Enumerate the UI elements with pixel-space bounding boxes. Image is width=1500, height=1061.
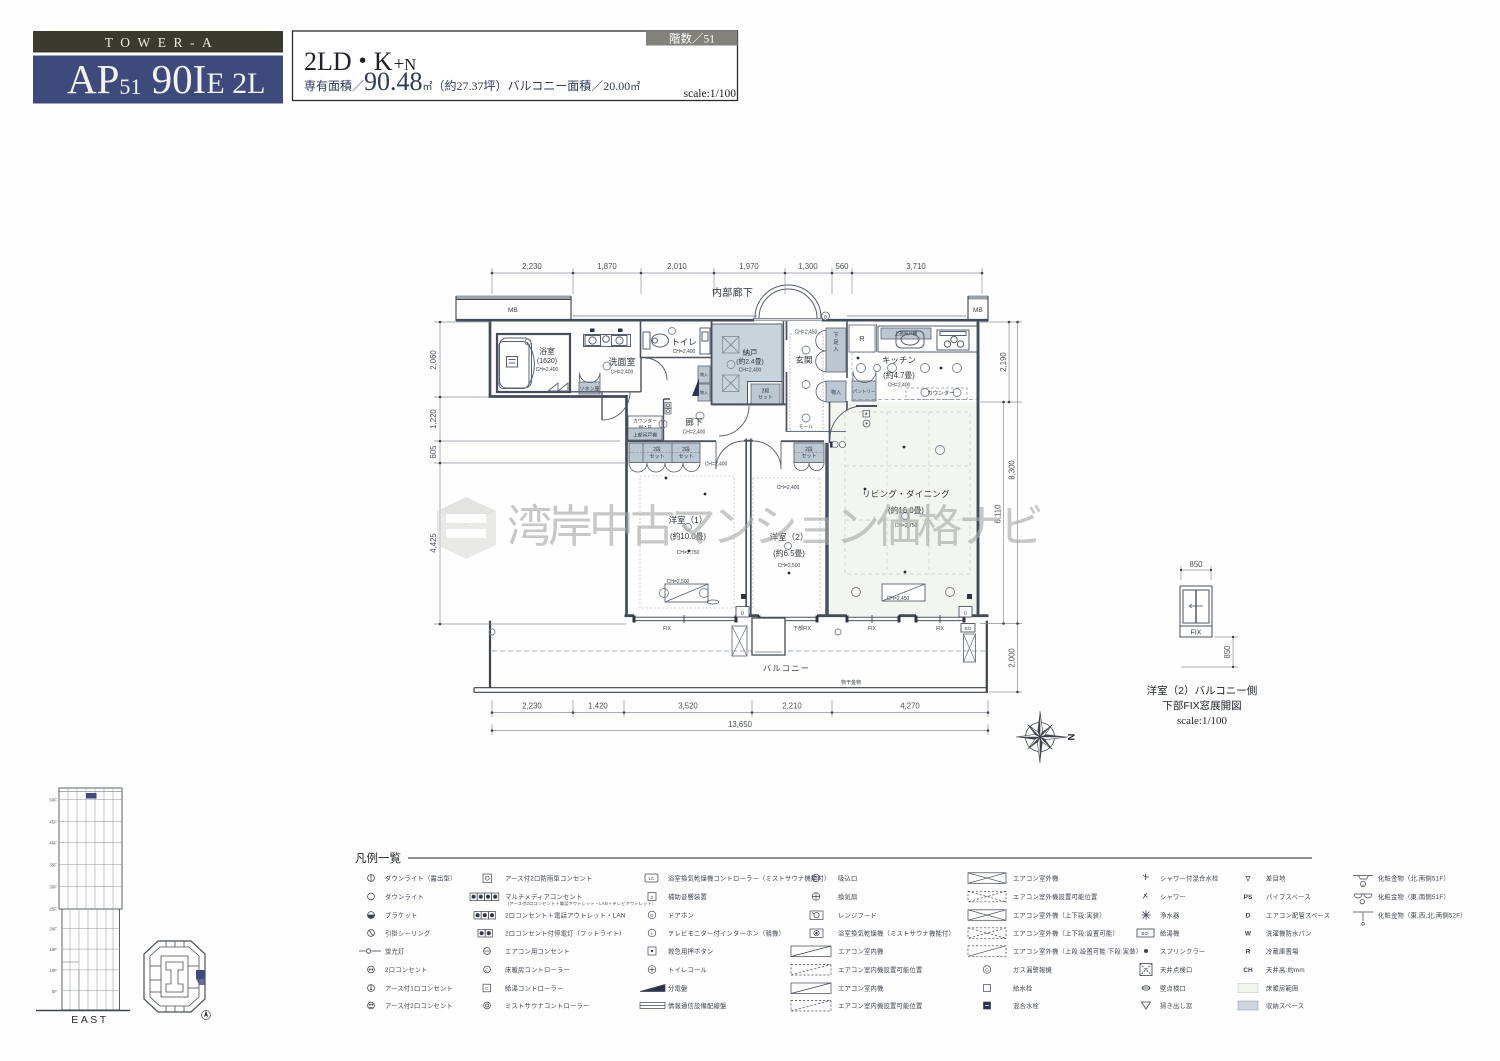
svg-text:物入: 物入: [700, 389, 708, 395]
svg-text:2,230: 2,230: [522, 262, 542, 271]
svg-text:下足入: 下足入: [833, 332, 839, 353]
svg-text:分電盤: 分電盤: [668, 984, 688, 993]
svg-text:キッチン: キッチン: [882, 355, 916, 365]
svg-text:エアコン室内機: エアコン室内機: [838, 984, 884, 993]
svg-text:物入: 物入: [831, 389, 841, 396]
svg-text:3,520: 3,520: [678, 702, 698, 711]
svg-text:W: W: [1245, 931, 1252, 938]
svg-text:アース付2口コンセント: アース付2口コンセント: [385, 1001, 453, 1010]
svg-text:CH=2,400: CH=2,400: [536, 367, 559, 373]
svg-text:FIX: FIX: [1191, 630, 1202, 637]
svg-text:下部FIX: 下部FIX: [793, 625, 811, 632]
svg-text:CH=2,450: CH=2,450: [795, 330, 818, 336]
svg-text:リビング・ダイニング: リビング・ダイニング: [862, 489, 950, 499]
svg-text:D: D: [650, 913, 654, 918]
svg-text:トイレ: トイレ: [671, 337, 697, 347]
svg-text:エアコン室外機（上下段:実装）: エアコン室外機（上下段:実装）: [1013, 911, 1106, 920]
svg-text:CH=2,500: CH=2,500: [778, 563, 801, 569]
svg-text:浴室換気乾燥機（ミストサウナ機能付）: 浴室換気乾燥機（ミストサウナ機能付）: [838, 929, 955, 938]
svg-text:ダウンライト（露出型）: ダウンライト（露出型）: [385, 874, 456, 883]
svg-text:浴室換気乾燥機コントローラー（ミストサウナ機能付）: 浴室換気乾燥機コントローラー（ミストサウナ機能付）: [668, 874, 830, 883]
svg-text:アース付2口防雨型コンセント: アース付2口防雨型コンセント: [505, 874, 592, 883]
svg-text:吸込口: 吸込口: [838, 874, 858, 883]
svg-text:D: D: [741, 611, 745, 617]
svg-text:セット: セット: [801, 454, 816, 460]
svg-text:カウンター: カウンター: [927, 389, 955, 397]
svg-text:BO: BO: [1142, 931, 1149, 936]
svg-text:2,010: 2,010: [667, 262, 687, 271]
svg-text:天井高:約mm: 天井高:約mm: [1266, 965, 1305, 974]
svg-text:2段: 2段: [805, 446, 813, 453]
svg-text:G: G: [985, 967, 989, 972]
svg-text:40F: 40F: [49, 841, 57, 846]
svg-text:CH=2,400: CH=2,400: [739, 368, 762, 374]
svg-text:シャワー: シャワー: [1160, 893, 1186, 901]
svg-text:CH=2,400: CH=2,400: [888, 383, 911, 389]
svg-text:2,060: 2,060: [429, 350, 438, 370]
svg-text:CH=2,400: CH=2,400: [673, 349, 696, 355]
svg-text:2段: 2段: [682, 446, 690, 453]
svg-text:エアコン配管スペース: エアコン配管スペース: [1266, 911, 1330, 920]
svg-text:2: 2: [651, 895, 654, 900]
svg-text:CH=2,400: CH=2,400: [611, 370, 634, 376]
svg-text:エアコン室外機設置可能位置: エアコン室外機設置可能位置: [1013, 892, 1097, 901]
svg-text:I: I: [651, 931, 652, 936]
svg-text:1,420: 1,420: [588, 702, 608, 711]
svg-text:換気扇: 換気扇: [838, 892, 858, 901]
svg-text:4,270: 4,270: [900, 702, 920, 711]
svg-text:20F: 20F: [49, 926, 57, 931]
svg-text:CH: CH: [1243, 967, 1253, 974]
svg-text:FIX: FIX: [936, 626, 944, 632]
svg-text:給湯機: 給湯機: [1160, 929, 1180, 938]
svg-text:2,230: 2,230: [522, 702, 542, 711]
svg-text:冷蔵庫置場: 冷蔵庫置場: [1266, 947, 1299, 956]
svg-text:2段: 2段: [762, 388, 770, 395]
svg-text:2口コンセント＋電話アウトレット・LAN: 2口コンセント＋電話アウトレット・LAN: [505, 911, 626, 920]
svg-text:下部FIX窓展開図: 下部FIX窓展開図: [1162, 699, 1241, 712]
svg-text:CH=2,400: CH=2,400: [777, 485, 800, 491]
svg-text:D: D: [1246, 913, 1251, 920]
svg-text:ミストサウナコントローラー: ミストサウナコントローラー: [505, 1002, 589, 1010]
svg-text:ガス漏警報機: ガス漏警報機: [1013, 965, 1052, 974]
svg-text:収納スペース: 収納スペース: [1266, 1001, 1304, 1010]
svg-text:洗濯機防水パン: 洗濯機防水パン: [1266, 929, 1312, 938]
svg-text:ダウンライト: ダウンライト: [385, 892, 424, 901]
svg-text:2,190: 2,190: [999, 352, 1008, 372]
svg-text:カウンター: カウンター: [633, 418, 657, 425]
svg-text:850: 850: [1223, 645, 1232, 659]
svg-text:CH=2,400: CH=2,400: [683, 430, 706, 436]
svg-text:階数／51: 階数／51: [669, 32, 715, 46]
svg-text:13,650: 13,650: [728, 720, 753, 729]
svg-text:(約2.4畳): (約2.4畳): [736, 357, 764, 366]
svg-text:パイプスペース: パイプスペース: [1266, 893, 1311, 901]
svg-text:壁点検口: 壁点検口: [1160, 984, 1186, 993]
svg-text:シャワー付混合水栓: シャワー付混合水栓: [1160, 874, 1219, 883]
svg-text:玄関: 玄関: [795, 355, 812, 365]
svg-text:スプリンクラー: スプリンクラー: [1160, 948, 1205, 956]
svg-text:エアコン室外機: エアコン室外機: [1013, 874, 1059, 883]
svg-text:25F: 25F: [49, 907, 57, 912]
svg-text:物干金物: 物干金物: [841, 679, 861, 686]
svg-text:セット: セット: [678, 454, 693, 460]
svg-text:救急用押ボタン: 救急用押ボタン: [668, 947, 713, 956]
svg-text:2口コンセント: 2口コンセント: [385, 966, 428, 974]
svg-text:内部廊下: 内部廊下: [712, 286, 753, 299]
svg-text:エアコン用コンセント: エアコン用コンセント: [505, 948, 570, 956]
svg-text:バルコニー: バルコニー: [763, 664, 810, 673]
svg-text:3,710: 3,710: [906, 262, 926, 271]
svg-text:1,300: 1,300: [798, 262, 818, 271]
svg-text:1,970: 1,970: [739, 262, 759, 271]
svg-text:エアコン室外機（上段:設置可能 下段:実装）: エアコン室外機（上段:設置可能 下段:実装）: [1013, 947, 1142, 956]
svg-text:D: D: [964, 611, 968, 617]
svg-text:MB: MB: [508, 307, 518, 314]
svg-text:混合水栓: 混合水栓: [1013, 1001, 1039, 1010]
svg-text:CH=2,400: CH=2,400: [705, 462, 728, 468]
svg-text:15F: 15F: [49, 947, 57, 952]
svg-text:差目地: 差目地: [1266, 874, 1286, 883]
svg-text:リネン庫: リネン庫: [579, 386, 599, 393]
svg-text:湾岸中古マンション価格ナビ: 湾岸中古マンション価格ナビ: [507, 501, 1041, 552]
svg-text:エアコン室内機設置可能位置: エアコン室内機設置可能位置: [838, 1001, 922, 1010]
svg-text:天井点検口: 天井点検口: [1160, 965, 1192, 974]
svg-text:床暖房範囲: 床暖房範囲: [1266, 984, 1298, 993]
svg-text:浴室: 浴室: [539, 346, 555, 356]
svg-text:廊下: 廊下: [685, 417, 703, 427]
svg-text:エアコン室内機: エアコン室内機: [838, 947, 884, 956]
svg-text:FIX: FIX: [868, 626, 876, 632]
svg-text:R: R: [1246, 949, 1251, 956]
svg-text:化粧金物（東,西,北,南側52F）: 化粧金物（東,西,北,南側52F）: [1378, 911, 1467, 920]
svg-text:掃き出し窓: 掃き出し窓: [1160, 1001, 1192, 1010]
svg-text:LC: LC: [649, 876, 656, 881]
svg-text:化粧金物（北,南側51F）: 化粧金物（北,南側51F）: [1378, 874, 1450, 883]
svg-text:引掛シーリング: 引掛シーリング: [385, 929, 431, 938]
svg-text:モール: モール: [799, 424, 814, 430]
svg-text:5F: 5F: [52, 989, 58, 994]
svg-text:45F: 45F: [49, 820, 57, 825]
svg-text:トイレコール: トイレコール: [668, 966, 707, 974]
svg-text:CH=2,500: CH=2,500: [667, 579, 690, 585]
svg-text:（アース付2口コンセント＋電話アウトレット・LAN＋テレビア: （アース付2口コンセント＋電話アウトレット・LAN＋テレビアウトレット）: [505, 900, 656, 907]
svg-text:CH=2,450: CH=2,450: [887, 596, 910, 602]
svg-text:N: N: [1065, 734, 1076, 741]
svg-text:FIX: FIX: [663, 626, 671, 632]
svg-text:上部吊戸棚: 上部吊戸棚: [633, 432, 657, 439]
svg-text:850: 850: [1189, 560, 1203, 569]
svg-text:▽: ▽: [1245, 876, 1252, 883]
svg-text:給水栓: 給水栓: [1013, 984, 1033, 993]
svg-text:上部吊戸棚: 上部吊戸棚: [895, 330, 918, 337]
svg-text:scale:1/100: scale:1/100: [684, 88, 737, 100]
svg-text:(約4.7畳): (約4.7畳): [883, 370, 915, 380]
svg-text:560: 560: [835, 262, 849, 271]
svg-text:EAST: EAST: [71, 1014, 108, 1026]
svg-text:エアコン室外機（上下段:設置可能）: エアコン室外機（上下段:設置可能）: [1013, 929, 1119, 938]
svg-text:ドアホン: ドアホン: [668, 912, 694, 920]
svg-text:2,000: 2,000: [1008, 648, 1017, 668]
svg-text:50F: 50F: [49, 798, 57, 803]
svg-text:エアコン室内機設置可能位置: エアコン室内機設置可能位置: [838, 965, 922, 974]
svg-text:テレビモニター付インターホン（親機）: テレビモニター付インターホン（親機）: [668, 929, 785, 938]
svg-text:化粧金物（東,南側51F）: 化粧金物（東,南側51F）: [1378, 892, 1450, 901]
svg-text:マルチメディアコンセント: マルチメディアコンセント: [505, 892, 583, 901]
svg-text:2口コンセント付停電灯（フットライト）: 2口コンセント付停電灯（フットライト）: [505, 929, 626, 938]
svg-text:セット: セット: [649, 454, 664, 460]
svg-text:補助音響装置: 補助音響装置: [668, 892, 707, 901]
svg-text:TOWER-A: TOWER-A: [105, 35, 220, 50]
svg-text:給湯コントローラー: 給湯コントローラー: [505, 984, 563, 993]
svg-text:洗面室: 洗面室: [608, 356, 635, 367]
svg-text:MB: MB: [973, 307, 983, 314]
svg-text:PS: PS: [1244, 894, 1253, 901]
svg-text:R: R: [859, 334, 865, 343]
svg-text:D: D: [824, 315, 828, 321]
svg-text:W・D: W・D: [639, 424, 652, 430]
svg-text:scale:1/100: scale:1/100: [1177, 715, 1228, 727]
svg-text:C: C: [485, 967, 489, 972]
svg-text:8,300: 8,300: [1008, 460, 1017, 480]
svg-text:2,210: 2,210: [782, 702, 802, 711]
svg-text:2段: 2段: [653, 446, 661, 453]
svg-text:レンジフード: レンジフード: [838, 912, 877, 920]
svg-text:BO: BO: [965, 626, 972, 632]
svg-text:床暖房コントローラー: 床暖房コントローラー: [505, 965, 570, 974]
svg-text:1,870: 1,870: [597, 262, 617, 271]
svg-text:10F: 10F: [49, 968, 57, 973]
svg-text:セット: セット: [758, 395, 773, 401]
svg-text:ブラケット: ブラケット: [385, 911, 417, 920]
svg-text:情報通信設備配線盤: 情報通信設備配線盤: [668, 1001, 727, 1010]
svg-text:1,220: 1,220: [429, 409, 438, 429]
svg-text:4,425: 4,425: [429, 533, 438, 553]
svg-text:35F: 35F: [49, 863, 57, 868]
svg-text:C: C: [485, 986, 489, 991]
svg-text:蛍光灯: 蛍光灯: [385, 947, 405, 956]
svg-text:パントリー: パントリー: [853, 389, 876, 394]
svg-text:605: 605: [429, 445, 438, 459]
svg-text:凡例一覧: 凡例一覧: [355, 851, 401, 865]
svg-text:納戸: 納戸: [743, 347, 758, 357]
svg-text:洋室（2）バルコニー側: 洋室（2）バルコニー側: [1147, 684, 1258, 697]
svg-text:浄水器: 浄水器: [1160, 911, 1180, 920]
svg-text:30F: 30F: [49, 885, 57, 890]
svg-text:アース付1口コンセント: アース付1口コンセント: [385, 984, 453, 993]
svg-text:物入: 物入: [700, 371, 708, 377]
svg-text:(1620): (1620): [537, 358, 557, 365]
